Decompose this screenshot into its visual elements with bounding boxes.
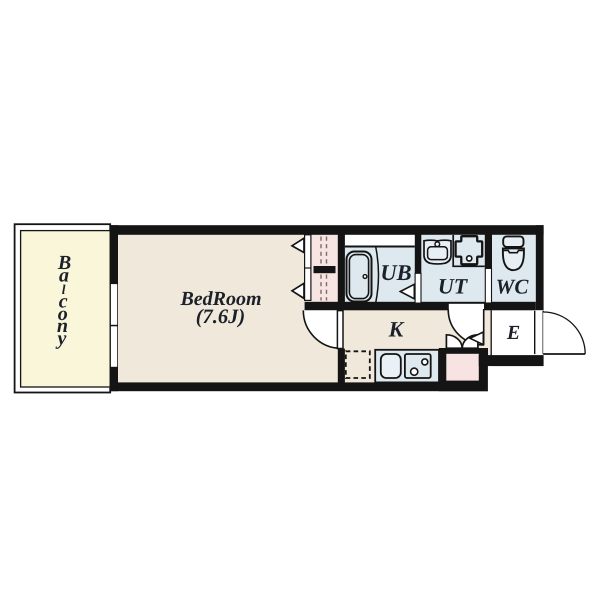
- svg-text:UT: UT: [438, 274, 469, 299]
- svg-text:WC: WC: [496, 274, 530, 298]
- svg-text:E: E: [506, 322, 520, 344]
- svg-text:UB: UB: [380, 260, 411, 285]
- svg-text:y: y: [56, 328, 67, 350]
- svg-text:K: K: [388, 317, 405, 342]
- svg-text:(7.6J): (7.6J): [196, 306, 246, 328]
